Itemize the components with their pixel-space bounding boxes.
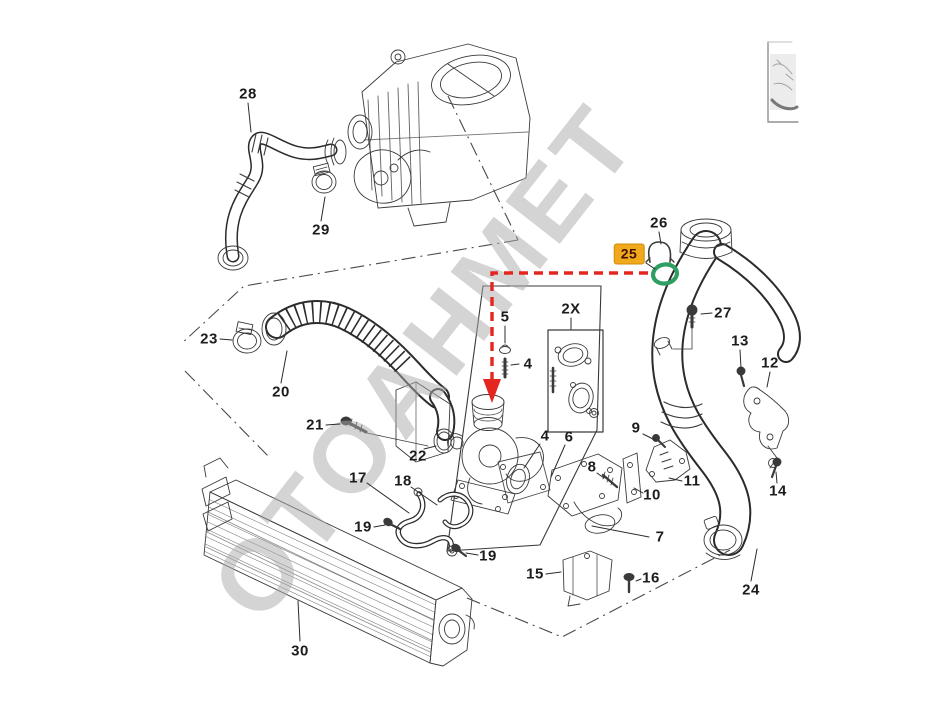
leader-line-24 <box>751 549 757 581</box>
parts-diagram-root: OTOAHMET 2829232021221718191930151652X44… <box>0 0 939 706</box>
leader-line-18 <box>411 487 437 505</box>
leader-line-17 <box>367 483 409 513</box>
leader-line-11 <box>669 478 682 481</box>
red-arrowhead <box>483 379 501 403</box>
leader-line-30 <box>298 601 300 641</box>
leader-line-21 <box>326 424 340 425</box>
red-locator-path <box>483 273 648 403</box>
leader-line-6 <box>551 445 565 477</box>
leader-line-12 <box>767 372 770 387</box>
leader-line-19 <box>466 553 478 555</box>
leader-line-7 <box>592 526 649 537</box>
leader-line-16 <box>636 579 641 581</box>
leader-line-20 <box>281 351 287 383</box>
leader-line-28 <box>248 103 251 132</box>
leader-line-14 <box>776 472 777 483</box>
leader-line-25 <box>646 263 655 269</box>
annotation-overlay <box>0 0 939 706</box>
leader-line-4 <box>524 444 540 468</box>
leader-line-29 <box>321 197 325 221</box>
leader-line-23 <box>220 339 232 340</box>
leader-line-27 <box>701 313 712 314</box>
leader-line-26 <box>659 232 661 244</box>
leader-line-10 <box>634 488 643 493</box>
leader-line-9 <box>643 434 655 440</box>
part-25-oring <box>652 263 679 286</box>
leader-lines <box>220 103 777 641</box>
leader-line-8 <box>597 473 604 478</box>
leader-line-19 <box>374 525 385 527</box>
leader-line-22 <box>424 446 436 449</box>
leader-line-15 <box>546 572 561 574</box>
leader-line-4 <box>511 364 519 365</box>
leader-line-13 <box>740 350 741 368</box>
